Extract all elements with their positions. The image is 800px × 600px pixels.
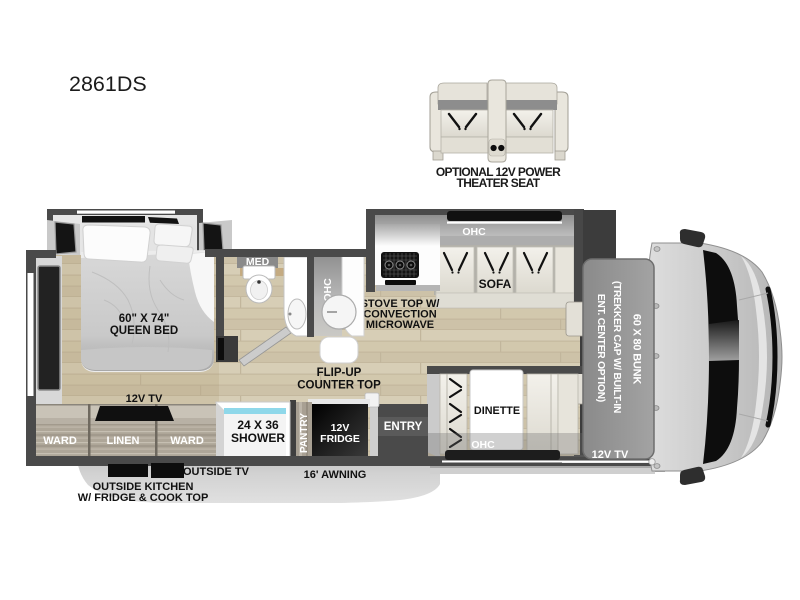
svg-text:WARD: WARD — [170, 435, 204, 447]
svg-text:PANTRY: PANTRY — [299, 413, 310, 453]
svg-text:12V TV: 12V TV — [126, 393, 163, 405]
svg-text:60 X 80 BUNK: 60 X 80 BUNK — [631, 314, 643, 385]
svg-text:LINEN: LINEN — [107, 435, 140, 447]
svg-text:24 X 36: 24 X 36 — [237, 418, 279, 432]
svg-text:2861DS: 2861DS — [69, 72, 147, 96]
svg-text:12V TV: 12V TV — [592, 449, 629, 461]
svg-text:FRIDGE: FRIDGE — [320, 433, 360, 445]
svg-text:DINETTE: DINETTE — [474, 405, 520, 417]
svg-text:(TREKKER CAP W/ BUILT-IN: (TREKKER CAP W/ BUILT-IN — [611, 281, 622, 413]
svg-text:16' AWNING: 16' AWNING — [304, 469, 367, 481]
svg-text:OHC: OHC — [471, 439, 495, 451]
svg-text:WARD: WARD — [43, 435, 77, 447]
svg-text:MICROWAVE: MICROWAVE — [366, 319, 434, 331]
svg-text:OUTSIDE TV: OUTSIDE TV — [183, 466, 250, 478]
svg-text:FLIP-UP: FLIP-UP — [317, 367, 362, 379]
svg-text:W/ FRIDGE & COOK TOP: W/ FRIDGE & COOK TOP — [78, 492, 209, 504]
svg-text:QUEEN BED: QUEEN BED — [110, 325, 178, 337]
svg-text:60" X 74": 60" X 74" — [119, 313, 170, 325]
svg-text:SOFA: SOFA — [479, 277, 512, 291]
svg-text:COUNTER TOP: COUNTER TOP — [297, 380, 381, 392]
svg-text:THEATER SEAT: THEATER SEAT — [456, 176, 540, 190]
svg-text:ENTRY: ENTRY — [384, 421, 423, 433]
svg-text:SHOWER: SHOWER — [231, 431, 285, 445]
svg-text:OHC: OHC — [462, 226, 486, 238]
svg-text:ENT. CENTER OPTION): ENT. CENTER OPTION) — [595, 294, 606, 402]
